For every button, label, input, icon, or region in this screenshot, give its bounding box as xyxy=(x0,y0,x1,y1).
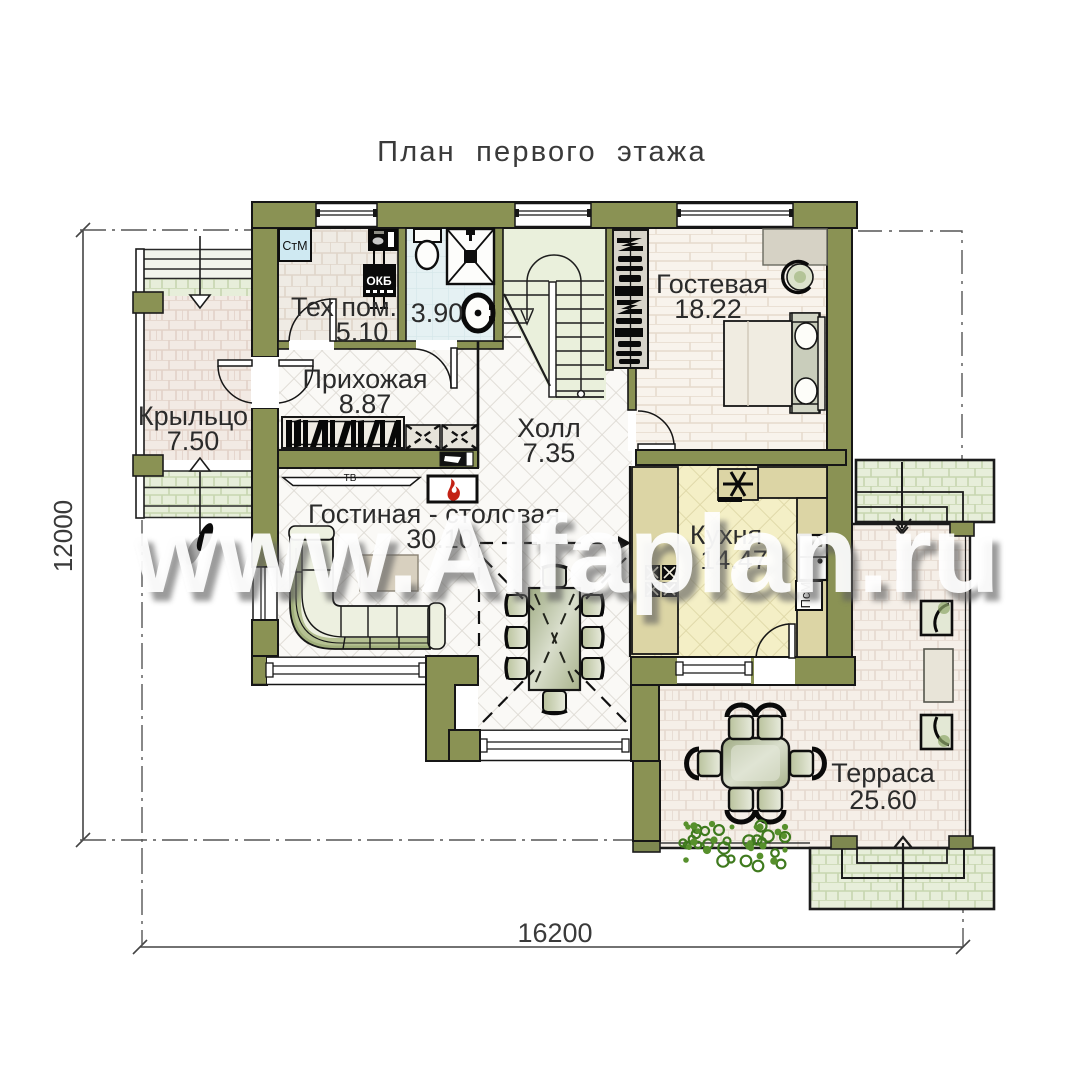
svg-text:16200: 16200 xyxy=(517,918,592,948)
svg-text:План первого этажа: План первого этажа xyxy=(377,136,707,168)
svg-text:www.Alfaplan.ru: www.Alfaplan.ru xyxy=(131,493,1000,616)
svg-text:СтМ: СтМ xyxy=(282,239,307,253)
svg-text:ТВ: ТВ xyxy=(344,473,357,484)
svg-text:8.87: 8.87 xyxy=(339,389,392,419)
svg-text:5.10: 5.10 xyxy=(336,317,389,347)
svg-text:18.22: 18.22 xyxy=(674,294,742,324)
svg-text:ОКБ: ОКБ xyxy=(366,274,392,288)
svg-text:3.90: 3.90 xyxy=(411,298,464,328)
svg-text:7.35: 7.35 xyxy=(523,438,576,468)
svg-text:12000: 12000 xyxy=(48,500,78,572)
svg-text:Терраса: Терраса xyxy=(831,758,936,788)
svg-text:25.60: 25.60 xyxy=(849,785,917,815)
svg-text:7.50: 7.50 xyxy=(167,426,220,456)
